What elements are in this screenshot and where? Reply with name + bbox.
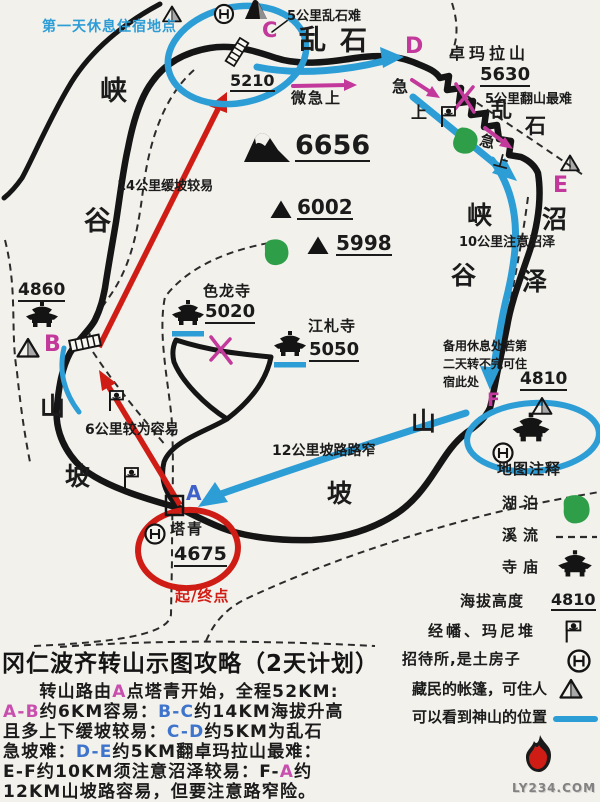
- route-description-line: 12KM山坡路容易，但要注意路窄险。: [3, 782, 403, 802]
- map-label: 塔青: [170, 522, 204, 537]
- map-label: 起/终点: [175, 589, 229, 604]
- map-label: 沼: [542, 207, 567, 232]
- legend-guesthouse-icon: [569, 651, 590, 672]
- map-label: 石: [340, 28, 367, 55]
- peak-icon-5998: [308, 237, 329, 255]
- map-label: 6公里较为容易: [85, 423, 179, 437]
- map-label: 5998: [336, 233, 392, 256]
- map-label: 6656: [295, 132, 370, 162]
- temple-icon-selong: [172, 300, 204, 325]
- tent-icon-b: [18, 339, 39, 357]
- legend-tent-icon: [561, 680, 582, 698]
- route-description-line: 且多上下缓坡较易：C-D约5KM为乱石: [3, 722, 403, 742]
- map-label: 色龙寺: [203, 284, 251, 299]
- legend-label: 寺庙: [502, 560, 544, 575]
- legend-temple-icon: [558, 550, 592, 576]
- route-description-line: A-B约6KM容易：B-C约14KM海拔升高: [3, 702, 403, 722]
- day1-route-arrows: [99, 92, 241, 591]
- map-title: 冈仁波齐转山示图攻略（2天计划）: [2, 644, 379, 678]
- map-label: 坡: [327, 481, 352, 506]
- map-label: C: [262, 20, 277, 41]
- temple-icon-jiangzha: [274, 331, 306, 356]
- map-label: A: [186, 483, 201, 503]
- map-label: 石: [525, 116, 546, 137]
- legend-label: 藏民的帐篷，可住人: [412, 682, 547, 697]
- map-label: 坡: [65, 464, 90, 489]
- tent-icon-e: [561, 156, 579, 171]
- legend-elevation-value: 4810: [551, 592, 596, 611]
- bridge-icon-b: [69, 335, 101, 352]
- map-label: 微急上: [291, 91, 342, 106]
- map-label: 峡: [100, 78, 127, 105]
- map-label: 峡: [467, 203, 492, 228]
- legend-label: 海拔高度: [460, 594, 524, 609]
- temple-base-bar-jiangzha: [274, 362, 306, 368]
- map-label: 乱: [299, 27, 326, 54]
- map-label: 卓玛拉山: [449, 46, 529, 62]
- route-description-line: E-F约10KM须注意沼泽较易：F-A约: [3, 762, 403, 782]
- map-label: 10公里注意沼泽: [459, 236, 555, 249]
- map-label: F: [487, 391, 500, 410]
- map-label: 第一天休息住宿地点: [42, 20, 177, 34]
- map-label: 山: [40, 394, 65, 419]
- map-label: 12公里坡路路窄: [272, 444, 375, 458]
- map-label: 5630: [480, 66, 530, 87]
- legend-flag-icon: [567, 622, 581, 643]
- temple-base-bar-selong: [172, 331, 204, 337]
- map-label: D: [405, 36, 423, 58]
- map-label: 谷: [451, 263, 476, 288]
- route-description: 转山路由A点塔青开始，全程52KM:A-B约6KM容易：B-C约14KM海拔升高…: [3, 682, 403, 802]
- watermark-flame-icon: [526, 735, 551, 772]
- route-description-line: 急坡难：D-E约5KM翻卓玛拉山最难：: [3, 742, 403, 762]
- legend-label: 招待所,是土房子: [402, 652, 521, 667]
- route-description-line: 转山路由A点塔青开始，全程52KM:: [3, 682, 403, 702]
- legend-title: 地图注释: [497, 462, 561, 477]
- legend-label: 可以看到神山的位置: [412, 710, 547, 725]
- legend-lake-icon: [564, 495, 590, 523]
- temple-icon-f: [513, 413, 550, 442]
- map-label: 江札寺: [308, 319, 356, 334]
- trek-map: 第一天休息住宿地点5公里乱石难C乱石D卓玛拉山56305公里翻山最难5210微急…: [0, 0, 600, 800]
- guesthouse-icon-start: [146, 525, 165, 544]
- map-label: 5050: [309, 341, 359, 362]
- temple-icon-4860: [26, 302, 58, 327]
- map-label: 泽: [522, 269, 547, 294]
- map-label: E: [553, 175, 568, 197]
- prayer-flag-icon-2: [125, 468, 138, 488]
- map-label: B: [44, 334, 61, 356]
- lake-icon-mid: [265, 239, 289, 265]
- map-label: 山: [411, 409, 436, 434]
- map-label: 谷: [84, 208, 111, 235]
- legend-label: 湖泊: [502, 496, 544, 511]
- map-label: 5公里乱石难: [287, 10, 361, 23]
- watermark-text: LY234.COM: [512, 781, 596, 795]
- map-label: 5020: [205, 303, 255, 324]
- map-label: 二天转不完可住: [443, 358, 527, 370]
- map-label: 上: [411, 105, 427, 121]
- map-label: 5210: [230, 73, 275, 92]
- map-label: 宿此处: [443, 376, 479, 388]
- map-label: 急: [392, 79, 408, 95]
- peak-icon-6002: [271, 201, 292, 219]
- map-label: 6002: [297, 197, 353, 220]
- map-label: 14公里缓坡较易: [117, 180, 213, 193]
- camp-guesthouse-icon: [215, 5, 233, 23]
- map-label: 乱: [491, 100, 512, 121]
- legend-label: 溪流: [502, 528, 544, 543]
- map-label: 备用休息处若第: [443, 340, 527, 352]
- map-label: 4810: [520, 371, 567, 391]
- legend-label: 经幡、玛尼堆: [428, 624, 536, 639]
- map-label: 4860: [18, 282, 65, 302]
- map-label: 4675: [174, 545, 227, 567]
